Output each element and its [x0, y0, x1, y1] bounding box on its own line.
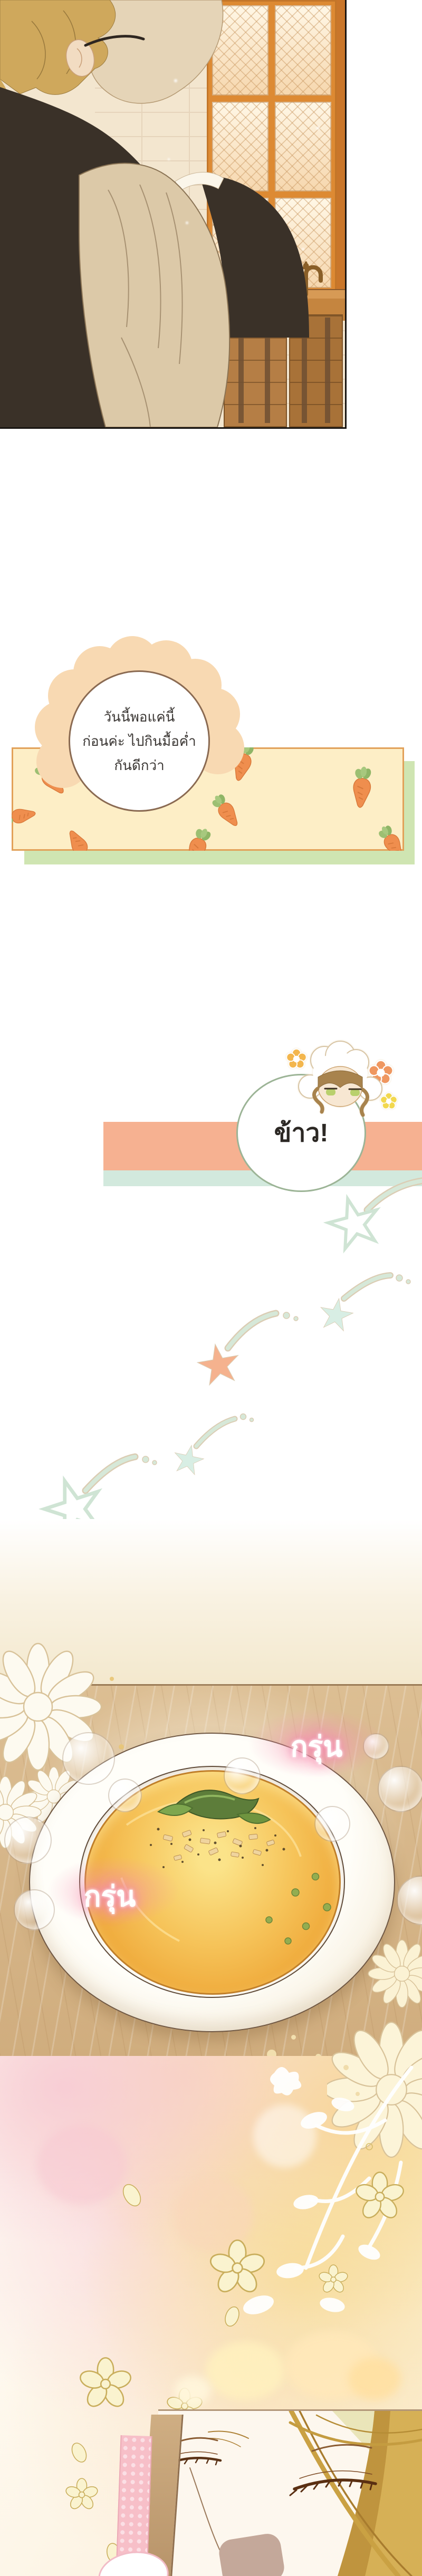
peas	[266, 1873, 331, 1945]
bubble-line: วันนี้พอแค่นี้	[104, 705, 175, 729]
webtoon-page: วันนี้พอแค่นี้ ก่อนค่ะ ไปกินมื้อค่ำ กันด…	[0, 0, 422, 2576]
light-glow	[348, 2358, 401, 2400]
light-glow	[174, 2376, 211, 2405]
flower-icon	[354, 2173, 405, 2221]
steam-bubble	[62, 1732, 115, 1785]
flower-icon	[368, 1940, 422, 2007]
panel-top-line	[158, 2409, 422, 2411]
star-icon	[172, 1443, 205, 1475]
star-icon	[196, 1342, 241, 1385]
sfx-steam: กรุ่น	[266, 1724, 367, 1769]
light-sparkle	[302, 248, 304, 251]
shooting-stars	[0, 1160, 422, 1540]
carrot-icon	[181, 825, 214, 851]
vegetable-garnish	[158, 1790, 270, 1823]
window-jamb	[337, 0, 345, 293]
flower-icon	[208, 2240, 266, 2295]
steam-bubble	[108, 1779, 142, 1812]
flower-sparkle-icon	[380, 1093, 398, 1110]
sleeping-face-panel	[158, 2411, 422, 2576]
steam-bubble	[378, 1766, 422, 1812]
star-icon	[319, 1296, 354, 1331]
flower-sparkle-icon	[285, 1049, 307, 1070]
croutons	[163, 1830, 275, 1861]
speech-bubble: วันนี้พอแค่นี้ ก่อนค่ะ ไปกินมื้อค่ำ กันด…	[69, 670, 210, 812]
butler-character	[0, 0, 316, 427]
sfx-steam: กรุ่น	[62, 1873, 157, 1919]
carrot-icon	[12, 806, 36, 827]
carrot-icon	[376, 823, 404, 851]
bubble-line: กันดีกว่า	[114, 753, 164, 777]
carrot-icon	[64, 826, 97, 851]
chibi-maid-head	[285, 1040, 398, 1127]
gold-sparkle	[291, 2035, 296, 2040]
light-sparkle	[316, 127, 320, 130]
steam-bubble	[4, 1816, 52, 1864]
light-sparkle	[186, 222, 188, 224]
flower-icon	[318, 2265, 349, 2294]
light-sparkle	[174, 79, 177, 82]
carrot-icon	[209, 792, 243, 830]
steam-bubble	[314, 1806, 350, 1842]
flower-icon	[78, 2358, 133, 2410]
kitchen-panel	[0, 0, 347, 429]
carrot-icon	[350, 766, 373, 809]
bubble-line: ก่อนค่ะ ไปกินมื้อค่ำ	[82, 729, 196, 753]
steam-bubble	[224, 1757, 261, 1794]
light-sparkle	[168, 158, 170, 160]
light-glow	[206, 2342, 285, 2400]
flower-icon	[65, 2478, 99, 2511]
